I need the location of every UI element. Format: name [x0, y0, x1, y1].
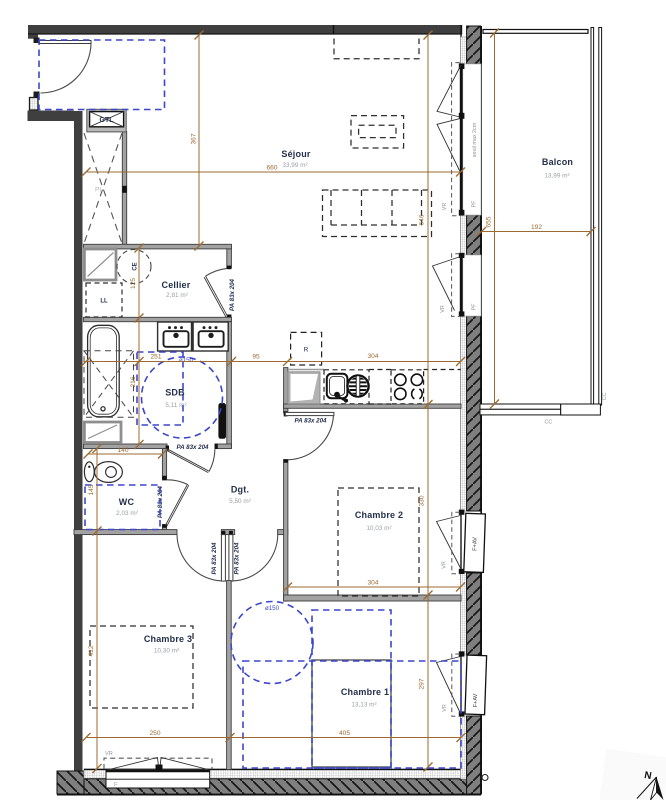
svg-text:330: 330 — [418, 495, 425, 506]
svg-text:ø150: ø150 — [179, 357, 194, 364]
svg-text:Chambre 1: Chambre 1 — [341, 687, 389, 697]
svg-text:CE: CE — [133, 262, 139, 270]
svg-text:VR: VR — [105, 751, 113, 757]
svg-text:5,50 m²: 5,50 m² — [229, 498, 251, 505]
svg-text:95: 95 — [252, 354, 260, 361]
svg-text:10,30 m²: 10,30 m² — [154, 648, 179, 655]
svg-text:Chambre 2: Chambre 2 — [355, 510, 403, 520]
svg-text:304: 304 — [367, 353, 378, 360]
svg-text:646: 646 — [418, 214, 425, 225]
svg-text:2,03 m²: 2,03 m² — [116, 510, 138, 517]
svg-text:WC: WC — [119, 497, 135, 507]
svg-text:LL: LL — [100, 299, 108, 305]
svg-text:R: R — [304, 347, 309, 354]
svg-text:Chambre 3: Chambre 3 — [144, 634, 192, 644]
svg-text:PA 83x 204: PA 83x 204 — [211, 542, 218, 575]
svg-text:660: 660 — [266, 165, 277, 172]
svg-text:Séjour: Séjour — [281, 149, 311, 159]
svg-text:412: 412 — [88, 645, 95, 656]
svg-text:Dgt.: Dgt. — [231, 485, 249, 495]
svg-text:PA 83x 204: PA 83x 204 — [229, 278, 236, 311]
svg-text:PA 83x 204: PA 83x 204 — [234, 542, 241, 575]
svg-text:Cellier: Cellier — [162, 280, 191, 290]
svg-text:CC: CC — [602, 393, 608, 401]
svg-text:PL: PL — [95, 187, 103, 194]
svg-text:Balcon: Balcon — [542, 157, 573, 167]
svg-text:33,99 m²: 33,99 m² — [282, 162, 307, 169]
svg-text:304: 304 — [367, 580, 378, 587]
svg-text:297: 297 — [418, 678, 425, 689]
svg-text:VR: VR — [442, 704, 448, 712]
svg-text:5,11 m²: 5,11 m² — [165, 402, 186, 409]
svg-text:145: 145 — [88, 484, 95, 495]
svg-text:192: 192 — [531, 224, 542, 231]
svg-text:13,99 m²: 13,99 m² — [544, 173, 569, 180]
svg-text:140: 140 — [117, 447, 128, 454]
svg-text:F+AV: F+AV — [473, 693, 479, 707]
svg-text:405: 405 — [339, 730, 350, 737]
svg-text:216: 216 — [130, 376, 137, 387]
svg-text:VR: VR — [442, 561, 448, 569]
svg-text:VR: VR — [442, 203, 448, 211]
svg-text:251: 251 — [150, 354, 161, 361]
svg-text:PF: PF — [472, 303, 478, 311]
svg-text:2,81 m²: 2,81 m² — [166, 292, 188, 299]
svg-text:655: 655 — [486, 216, 493, 227]
svg-text:F: F — [114, 783, 118, 789]
svg-text:PF: PF — [472, 200, 478, 208]
svg-text:PA 83x 204: PA 83x 204 — [177, 444, 210, 451]
svg-text:ø150: ø150 — [265, 605, 280, 612]
svg-text:125: 125 — [130, 278, 137, 289]
svg-text:SDB: SDB — [165, 388, 185, 398]
svg-text:CC: CC — [545, 420, 553, 426]
svg-text:GTL: GTL — [99, 115, 114, 124]
svg-text:F+AV: F+AV — [473, 537, 479, 551]
svg-text:13,13 m²: 13,13 m² — [351, 702, 376, 709]
svg-text:10,03 m²: 10,03 m² — [366, 525, 391, 532]
svg-text:PA 83x 204: PA 83x 204 — [295, 418, 328, 425]
svg-text:367: 367 — [191, 133, 198, 144]
svg-text:seuil max 2cm: seuil max 2cm — [472, 122, 478, 157]
svg-text:250: 250 — [149, 730, 160, 737]
svg-text:VR: VR — [440, 305, 446, 313]
